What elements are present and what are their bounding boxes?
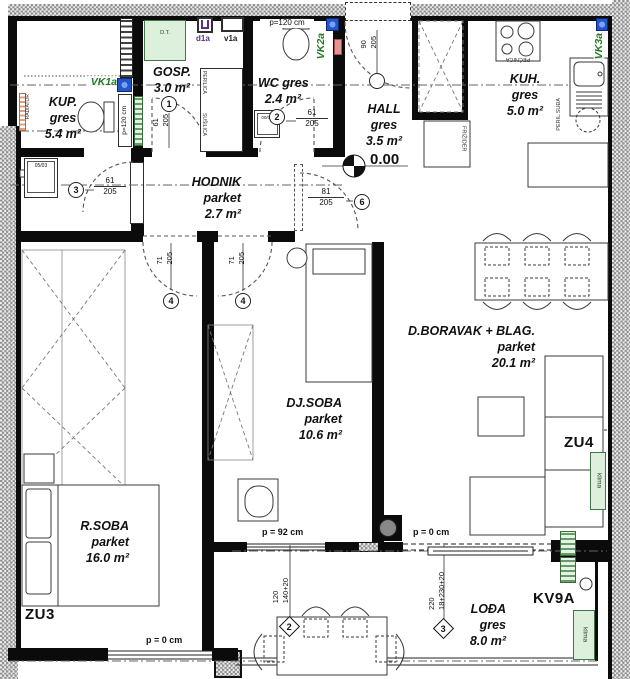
vk1a-vent-icon bbox=[117, 78, 132, 92]
door4b-dims: 71 205 bbox=[228, 252, 247, 265]
elevation-marker-icon bbox=[343, 155, 365, 177]
room-label-kup: KUP. gres 5.4 m² bbox=[36, 94, 90, 142]
wall-vent-strip bbox=[134, 96, 143, 146]
door-circle-4b: 4 bbox=[235, 293, 251, 309]
wall bbox=[143, 148, 152, 157]
kup-window-box: p=120 cm bbox=[118, 94, 132, 147]
d1a-fixture bbox=[197, 17, 213, 33]
room-label-djsoba: DJ.SOBA parket 10.6 m² bbox=[284, 395, 342, 443]
room-floor: parket bbox=[191, 190, 241, 206]
klima-unit-kv9a: klima bbox=[573, 610, 595, 660]
elevation-label: 0.00 bbox=[370, 151, 399, 168]
room-area: 20.1 m² bbox=[408, 355, 535, 371]
room-label-boravak: D.BORAVAK + BLAG. parket 20.1 m² bbox=[408, 323, 535, 371]
wall-djsoba-boravak bbox=[372, 242, 384, 542]
window-dim: 18+230+20 bbox=[438, 572, 446, 610]
window3-dims: 220 18+230+20 bbox=[428, 572, 447, 610]
frizider-label: FRIŽIDER bbox=[460, 126, 466, 151]
room-floor: gres bbox=[36, 110, 90, 126]
susilica-label: SUŠILICA bbox=[201, 113, 206, 136]
room-label-wc: WC gres 2.4 m² bbox=[258, 75, 308, 107]
window-diamond-3: 3 bbox=[433, 618, 454, 639]
room-name: WC gres bbox=[258, 75, 308, 91]
wall bbox=[379, 542, 403, 552]
room-label-gosp: GOSP. 3.0 m² bbox=[148, 64, 196, 96]
wall-gosp-wc bbox=[243, 16, 253, 148]
door3-jamb bbox=[130, 162, 144, 224]
floor-plan: p=120 cm 05/03 00/09 D.T. klima klima KU… bbox=[0, 0, 630, 679]
window-number: 2 bbox=[287, 621, 292, 631]
door4a-dims: 71 205 bbox=[156, 252, 175, 265]
door-height: 205 bbox=[162, 114, 170, 127]
wall bbox=[314, 148, 345, 157]
entry-door-opening bbox=[345, 2, 411, 21]
room-area: 5.4 m² bbox=[36, 126, 90, 142]
vk2a-label: VK2a bbox=[316, 33, 327, 59]
room-area: 16.0 m² bbox=[80, 550, 129, 566]
room-floor: gres bbox=[466, 617, 506, 633]
shaft-marker bbox=[334, 39, 342, 55]
door6-dims: 81 205 bbox=[308, 187, 344, 207]
entry-door-dims: 90 205 bbox=[360, 36, 379, 49]
klima-label: klima bbox=[595, 473, 602, 488]
windows bbox=[108, 544, 598, 665]
wall-closet-kuh bbox=[462, 16, 468, 120]
room-area: 8.0 m² bbox=[466, 633, 506, 649]
wall-hatch-block bbox=[358, 542, 379, 552]
centerlines bbox=[10, 85, 607, 661]
parapet-dj: p = 92 cm bbox=[262, 527, 303, 537]
window-dim: 220 bbox=[428, 572, 436, 610]
door-width: 61 bbox=[106, 176, 115, 185]
door3-dims: 61 205 bbox=[94, 176, 126, 196]
dt-box: D.T. bbox=[144, 20, 186, 61]
klima-label: klima bbox=[581, 627, 588, 642]
wall bbox=[268, 231, 295, 242]
window-dim: 120 bbox=[272, 578, 280, 603]
door-height: 205 bbox=[319, 198, 332, 207]
wall bbox=[608, 16, 612, 679]
room-name: GOSP. bbox=[148, 64, 196, 80]
parapet-wc-top: p=120 cm bbox=[260, 19, 314, 28]
wall bbox=[325, 542, 358, 552]
room-area: 3.0 m² bbox=[148, 80, 196, 96]
door-width: 90 bbox=[360, 36, 368, 49]
vk3a-label: VK3a bbox=[594, 33, 605, 59]
door-circle-6: 6 bbox=[354, 194, 370, 210]
room-label-hodnik: HODNIK parket 2.7 m² bbox=[191, 174, 241, 222]
room-floor: parket bbox=[284, 411, 342, 427]
room-name: R.SOBA bbox=[80, 518, 129, 534]
exterior-wall-hatch-right bbox=[612, 0, 630, 679]
door-height: 205 bbox=[370, 36, 378, 49]
wall-rsoba-djsoba bbox=[202, 242, 214, 651]
door-height: 205 bbox=[166, 252, 174, 265]
door-circle-4a: 4 bbox=[163, 293, 179, 309]
perilica-label: PERILICA bbox=[201, 71, 206, 94]
vk2a-vent-icon bbox=[326, 18, 339, 31]
wall bbox=[8, 16, 17, 126]
wall bbox=[412, 112, 468, 120]
door-circle-1: 1 bbox=[161, 96, 177, 112]
door-width: 61 bbox=[152, 114, 160, 127]
door6-leaf bbox=[294, 164, 303, 231]
room-area: 3.5 m² bbox=[363, 133, 405, 149]
radiator-label: RADIATOR bbox=[26, 94, 31, 119]
room-area: 2.7 m² bbox=[191, 206, 241, 222]
room-area: 5.0 m² bbox=[503, 103, 547, 119]
vk3a-vent-icon bbox=[596, 18, 608, 31]
dj-soba-furniture bbox=[238, 244, 372, 521]
door-width: 71 bbox=[228, 252, 236, 265]
door1-dims: 61 205 bbox=[152, 114, 171, 127]
room-name: HODNIK bbox=[191, 174, 241, 190]
wall-dj-loggia bbox=[202, 542, 247, 552]
d1a-label: d1a bbox=[196, 35, 210, 44]
wall-wc-hall bbox=[333, 16, 345, 156]
door-height: 205 bbox=[305, 119, 318, 128]
mark-zu4: ZU4 bbox=[564, 434, 594, 451]
vk1a-label: VK1a bbox=[86, 76, 117, 88]
v1a-fixture bbox=[221, 17, 244, 32]
entry-door-circle bbox=[369, 73, 385, 89]
window2-dims: 120 140+20 bbox=[272, 578, 291, 603]
door-width: 61 bbox=[308, 108, 317, 117]
parapet-living: p = 0 cm bbox=[413, 527, 449, 537]
window-dim: 140+20 bbox=[282, 578, 290, 603]
wall-hall-closet bbox=[412, 16, 418, 120]
door-height: 205 bbox=[103, 187, 116, 196]
column-block bbox=[374, 515, 402, 541]
door-width: 81 bbox=[322, 187, 331, 196]
room-label-lodja: LOĐA gres 8.0 m² bbox=[466, 601, 506, 649]
dining-set bbox=[475, 234, 608, 310]
d1a-icon bbox=[201, 20, 209, 29]
kup-parapet-label: p=120 cm bbox=[122, 106, 129, 135]
room-name: D.BORAVAK + BLAG. bbox=[408, 323, 535, 339]
wall bbox=[212, 648, 238, 661]
installation-shaft bbox=[120, 18, 133, 78]
parapet-rsoba: p = 0 cm bbox=[146, 635, 182, 645]
wall bbox=[16, 148, 84, 157]
room-label-hall: HALL gres 3.5 m² bbox=[363, 101, 405, 149]
v1a-label: v1a bbox=[224, 35, 237, 44]
room-floor: parket bbox=[408, 339, 535, 355]
loggia-vent-strip bbox=[560, 557, 576, 583]
room-floor: gres bbox=[503, 87, 547, 103]
closet-outlines bbox=[22, 250, 253, 487]
wall-hodnik-rsoba bbox=[16, 231, 143, 242]
room-floor: gres bbox=[363, 117, 405, 133]
mark-kv9a: KV9A bbox=[533, 590, 575, 607]
room-name: HALL bbox=[363, 101, 405, 117]
door2-dims: 61 205 bbox=[296, 108, 328, 128]
room-floor: parket bbox=[80, 534, 129, 550]
dt-label: D.T. bbox=[160, 30, 170, 36]
room-label-kuh: KUH. gres 5.0 m² bbox=[503, 71, 547, 119]
wall bbox=[16, 126, 21, 648]
wall-rsoba-south bbox=[8, 648, 108, 661]
window-number: 3 bbox=[441, 623, 446, 633]
room-name: KUP. bbox=[36, 94, 90, 110]
room-label-rsoba: R.SOBA parket 16.0 m² bbox=[80, 518, 129, 566]
room-area: 10.6 m² bbox=[284, 427, 342, 443]
wall-loggia-east bbox=[595, 562, 598, 661]
door-circle-2: 2 bbox=[269, 109, 285, 125]
room-name: DJ.SOBA bbox=[284, 395, 342, 411]
door-height: 205 bbox=[238, 252, 246, 265]
pecnica-label: PEĆNICA bbox=[500, 56, 536, 62]
shower-cabinet: 05/03 bbox=[24, 158, 58, 198]
wall bbox=[411, 16, 612, 21]
mark-zu3: ZU3 bbox=[25, 606, 55, 623]
room-name: LOĐA bbox=[466, 601, 506, 617]
room-name: KUH. bbox=[503, 71, 547, 87]
door-circle-3: 3 bbox=[68, 182, 84, 198]
peril-sudja-label: PERIL.SUĐA bbox=[557, 98, 563, 131]
door-width: 71 bbox=[156, 252, 164, 265]
room-area: 2.4 m² bbox=[258, 91, 308, 107]
window-diamond-2: 2 bbox=[279, 616, 300, 637]
wall bbox=[197, 231, 218, 242]
loggia-vent-strip bbox=[560, 531, 576, 556]
shower-cabinet-label: 05/03 bbox=[27, 161, 55, 193]
klima-unit-zu4: klima bbox=[590, 452, 606, 510]
